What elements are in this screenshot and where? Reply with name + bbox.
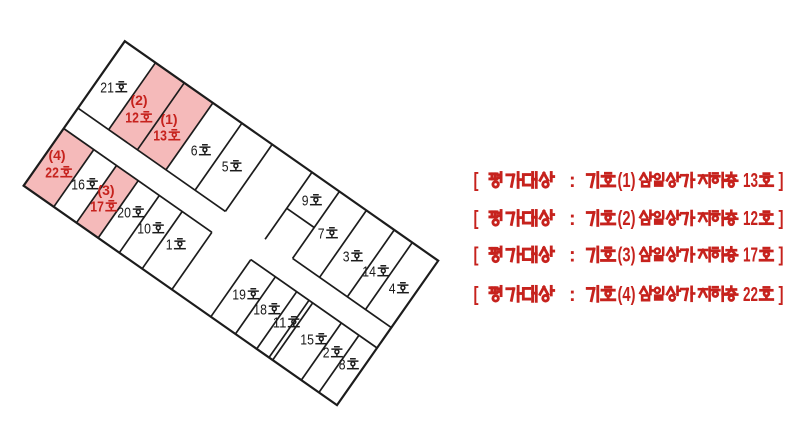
svg-text:21: 21: [100, 79, 114, 96]
svg-text:7: 7: [318, 225, 325, 242]
svg-text:6: 6: [191, 142, 198, 159]
svg-text:[: [: [474, 170, 479, 192]
svg-text:[: [: [474, 245, 479, 267]
svg-text:(4): (4): [618, 284, 636, 306]
svg-text:17: 17: [90, 198, 104, 215]
svg-text:]: ]: [779, 170, 784, 192]
svg-text:13: 13: [153, 127, 167, 144]
svg-text:12: 12: [125, 109, 139, 126]
svg-text:[: [: [474, 208, 479, 230]
svg-text:(2): (2): [130, 92, 147, 108]
svg-text:]: ]: [779, 245, 784, 267]
svg-text:1: 1: [166, 236, 173, 253]
svg-text:(1): (1): [160, 111, 177, 127]
svg-text:(3): (3): [618, 245, 636, 267]
svg-text:17: 17: [743, 245, 758, 267]
svg-text:4: 4: [389, 280, 396, 297]
svg-text:20: 20: [117, 204, 131, 221]
svg-text:22: 22: [743, 284, 758, 306]
svg-text::: :: [569, 208, 576, 230]
svg-text:[: [: [474, 284, 479, 306]
svg-text:8: 8: [339, 356, 346, 373]
svg-text:]: ]: [779, 208, 784, 230]
svg-text:11: 11: [273, 314, 287, 331]
svg-text:18: 18: [253, 301, 267, 318]
svg-text:16: 16: [71, 176, 85, 193]
svg-text:10: 10: [137, 220, 151, 237]
svg-text:22: 22: [45, 164, 59, 181]
svg-text:]: ]: [779, 284, 784, 306]
svg-text:19: 19: [232, 286, 246, 303]
svg-text::: :: [569, 245, 576, 267]
svg-text::: :: [569, 284, 576, 306]
svg-text:3: 3: [343, 248, 350, 265]
svg-text:(2): (2): [618, 208, 636, 230]
svg-text:(1): (1): [618, 170, 636, 192]
svg-text:5: 5: [222, 158, 229, 175]
svg-text:14: 14: [362, 263, 376, 280]
svg-text:(3): (3): [97, 182, 114, 198]
svg-text:2: 2: [323, 344, 330, 361]
svg-text:(4): (4): [48, 147, 65, 163]
svg-text:9: 9: [302, 192, 309, 209]
svg-text::: :: [569, 170, 576, 192]
svg-text:13: 13: [743, 170, 758, 192]
svg-text:15: 15: [300, 331, 314, 348]
svg-text:12: 12: [743, 208, 758, 230]
